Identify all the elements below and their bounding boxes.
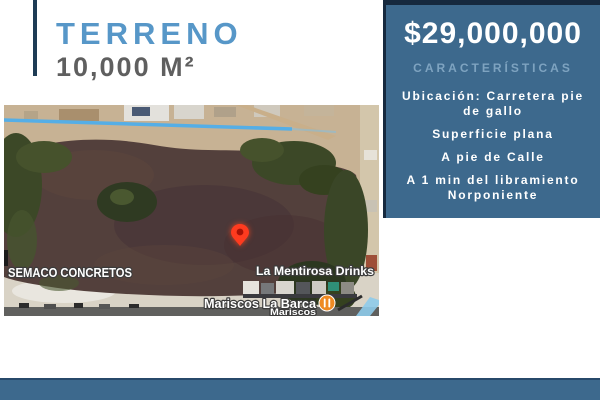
- satellite-map: SEMACO CONCRETOS La Mentirosa Drinks Mar…: [4, 105, 379, 316]
- feature-location: Ubicación: Carretera pie de gallo: [390, 89, 596, 119]
- poi-label-semaco: SEMACO CONCRETOS: [8, 265, 132, 280]
- feature-street: A pie de Calle: [390, 150, 596, 165]
- details-panel: $29,000,000 CARACTERÍSTICAS Ubicación: C…: [383, 0, 600, 218]
- price: $29,000,000: [390, 17, 596, 51]
- features-heading: CARACTERÍSTICAS: [390, 61, 596, 75]
- accent-bar: [33, 0, 37, 76]
- feature-highway: A 1 min del libramiento Norponiente: [390, 173, 596, 203]
- page-title: TERRENO: [56, 16, 243, 52]
- feature-surface: Superficie plana: [390, 127, 596, 142]
- listing-flyer: TERRENO 10,000 M²: [0, 0, 600, 400]
- poi-label-mentirosa: La Mentirosa Drinks: [256, 264, 374, 278]
- satellite-map-image: SEMACO CONCRETOS La Mentirosa Drinks Mar…: [4, 105, 379, 316]
- restaurant-icon: [319, 295, 335, 311]
- footer-bar: [0, 378, 600, 400]
- poi-label-barca-sub: Mariscos: [270, 307, 316, 316]
- lot-area: 10,000 M²: [56, 52, 196, 83]
